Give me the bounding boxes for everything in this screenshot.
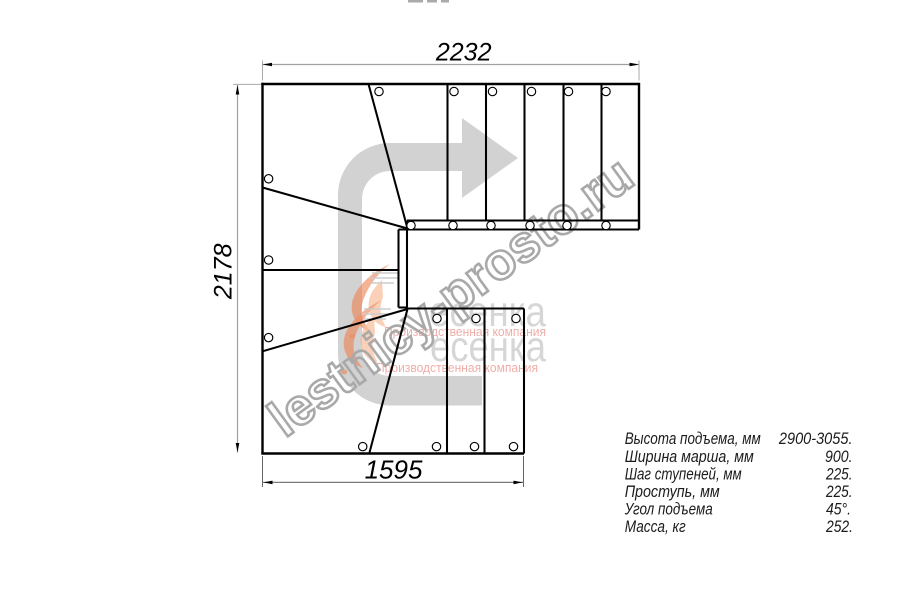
- svg-text:900.: 900.: [825, 447, 853, 466]
- svg-text:Проступь, мм: Проступь, мм: [625, 482, 720, 501]
- svg-text:252.: 252.: [825, 517, 853, 536]
- svg-text:1595: 1595: [365, 454, 423, 484]
- svg-text:Шаг ступеней, мм: Шаг ступеней, мм: [625, 464, 742, 483]
- svg-text:Ширина марша, мм: Ширина марша, мм: [625, 447, 754, 466]
- svg-text:Угол подъема: Угол подъема: [624, 500, 713, 519]
- svg-text:225.: 225.: [825, 482, 852, 501]
- svg-text:2232: 2232: [435, 38, 492, 66]
- svg-text:45°.: 45°.: [826, 500, 851, 519]
- svg-text:Высота подъема, мм: Высота подъема, мм: [625, 429, 761, 448]
- svg-text:Масса, кг: Масса, кг: [625, 517, 686, 536]
- svg-text:2900-3055.: 2900-3055.: [778, 429, 852, 448]
- svg-text:225.: 225.: [825, 464, 852, 483]
- svg-text:2178: 2178: [210, 243, 238, 300]
